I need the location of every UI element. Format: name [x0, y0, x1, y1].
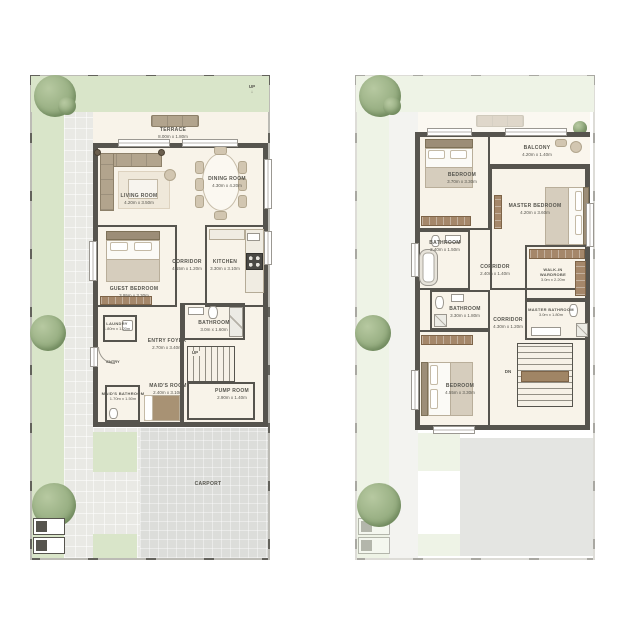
sink-icon	[451, 294, 464, 302]
toilet-icon	[109, 408, 118, 419]
label-walkin-wardrobe: WALK-IN WARDROBE 3.0m x 2.20m	[531, 267, 575, 283]
meter-dial-icon	[36, 540, 47, 551]
wardrobe-icon	[421, 216, 471, 226]
label-bedroom-1: BEDROOM 3.70m x 3.30m	[437, 172, 487, 184]
kitchen-counter-icon	[209, 229, 245, 240]
outdoor-sofa-icon	[151, 115, 199, 127]
label-corridor-1: CORRIDOR 2.40m x 1.40m	[470, 264, 520, 276]
outdoor-sofa-icon	[476, 115, 524, 127]
dining-chair-icon	[195, 161, 204, 174]
label-maids-bathroom: MAID'S BATHROOM 1.70m x 1.50m	[99, 391, 147, 401]
closet-icon	[529, 249, 585, 259]
label-bathroom-gf: BATHROOM 3.0m x 1.60m	[190, 320, 238, 332]
carport-ghost	[460, 438, 593, 556]
label-balcony: BALCONY 4.20m x 1.40m	[512, 145, 562, 157]
label-kitchen: KITCHEN 3.30m x 3.10m	[200, 259, 250, 271]
label-dining-room: DINING ROOM 4.30m x 4.20m	[202, 176, 252, 188]
label-corridor-2: CORRIDOR 4.30m x 1.20m	[483, 317, 533, 329]
bed-icon	[421, 362, 428, 416]
wardrobe-icon	[421, 335, 473, 345]
tree-icon	[383, 97, 401, 115]
bed-icon	[106, 231, 160, 240]
grass-patch-lower	[93, 534, 137, 558]
dining-chair-icon	[214, 146, 227, 155]
entry-door-opening	[90, 347, 98, 367]
sink-icon	[247, 233, 260, 241]
lamp-icon	[94, 149, 101, 156]
pillow-icon	[430, 365, 438, 385]
pillow-icon	[575, 215, 582, 235]
label-terrace: TERRACE 8.00m x 1.80m	[118, 127, 228, 139]
plot-fence-bottom	[30, 558, 270, 560]
dining-chair-icon	[238, 161, 247, 174]
label-laundry: LAUNDRY 1.80m x 1.20m	[102, 321, 132, 331]
tree-icon	[355, 315, 391, 351]
dresser-icon	[494, 195, 502, 229]
toilet-icon	[208, 306, 218, 319]
dining-chair-icon	[195, 195, 204, 208]
window	[427, 128, 472, 136]
ground-floor-plan: CARPORT TERRACE 8.00m x 1.80m UP ↓ LIVIN…	[30, 75, 270, 560]
plot-fence-right	[268, 75, 270, 560]
side-table-icon	[164, 169, 176, 181]
label-bathroom-1: BATHROOM 2.40m x 1.50m	[421, 240, 469, 252]
lamp-icon	[158, 149, 165, 156]
sink-icon	[188, 307, 204, 315]
bed-icon	[425, 139, 473, 148]
label-carport: CARPORT	[183, 481, 233, 488]
window	[411, 243, 419, 277]
balcony-opening	[505, 128, 567, 136]
grass-patch-upper	[93, 432, 137, 472]
down-stairs-annotation: DN	[501, 370, 515, 375]
label-master-bathroom: MASTER BATHROOM 3.0m x 1.80m	[525, 307, 577, 317]
label-guest-bedroom: GUEST BEDROOM 3.95m x 3.30m	[103, 286, 165, 298]
window	[433, 426, 475, 434]
pillow-icon	[110, 242, 128, 251]
pillow-icon	[428, 150, 445, 159]
label-master-bedroom: MASTER BEDROOM 4.20m x 3.60m	[507, 203, 563, 215]
grass-patch-lower	[418, 534, 460, 556]
meter-dial-icon	[36, 521, 47, 532]
window	[264, 159, 272, 209]
label-entry-foyer: ENTRY FOYER 2.70m x 3.40m	[142, 338, 192, 350]
window	[411, 370, 419, 410]
carport-area	[140, 428, 268, 558]
utility-meter-icon	[33, 537, 65, 554]
bathtub-icon	[419, 249, 438, 286]
label-bedroom-2: BEDROOM 4.55m x 3.30m	[435, 383, 485, 395]
meter-dial-icon	[361, 540, 372, 551]
utility-meter-icon	[358, 537, 390, 554]
utility-meter-icon	[33, 518, 65, 535]
down-arrow-icon: ↓	[251, 89, 253, 94]
pillow-icon	[575, 191, 582, 211]
tree-icon	[357, 483, 401, 527]
floorplan-page: { "colors":{"grass":"#d9e5c9","path":"#e…	[0, 0, 620, 620]
up-stairs-annotation: UP	[189, 351, 201, 356]
tree-icon	[30, 315, 66, 351]
label-living-room: LIVING ROOM 4.20m x 3.50m	[109, 193, 169, 205]
label-maids-room: MAID'S ROOM 2.40m x 3.10m	[143, 383, 193, 395]
stair-landing-icon	[521, 371, 569, 382]
grass-patch-upper	[418, 433, 460, 471]
double-sink-icon	[531, 327, 561, 336]
pillow-icon	[134, 242, 152, 251]
balcony-chair-icon	[570, 141, 582, 153]
window	[264, 231, 272, 265]
blanket-icon	[545, 187, 569, 245]
closet-icon	[575, 261, 586, 296]
up-steps-annotation: UP ↓	[244, 85, 260, 95]
terrace-door	[182, 139, 238, 147]
pillow-icon	[450, 150, 467, 159]
window	[118, 139, 170, 147]
plot-fence-bottom	[355, 558, 595, 560]
label-pump-room: PUMP ROOM 2.90m x 1.40m	[207, 388, 257, 400]
entry-annotation: ENTRY	[100, 360, 126, 364]
plot-fence-right	[593, 75, 595, 560]
dining-chair-icon	[214, 211, 227, 220]
window	[89, 241, 97, 281]
shower-icon	[576, 323, 588, 337]
tree-icon	[58, 97, 76, 115]
dining-chair-icon	[238, 195, 247, 208]
window	[586, 203, 594, 247]
first-floor-plan: BEDROOM 3.70m x 3.30m BALCONY 4.20m x 1.…	[355, 75, 595, 560]
blanket-icon	[106, 259, 160, 282]
